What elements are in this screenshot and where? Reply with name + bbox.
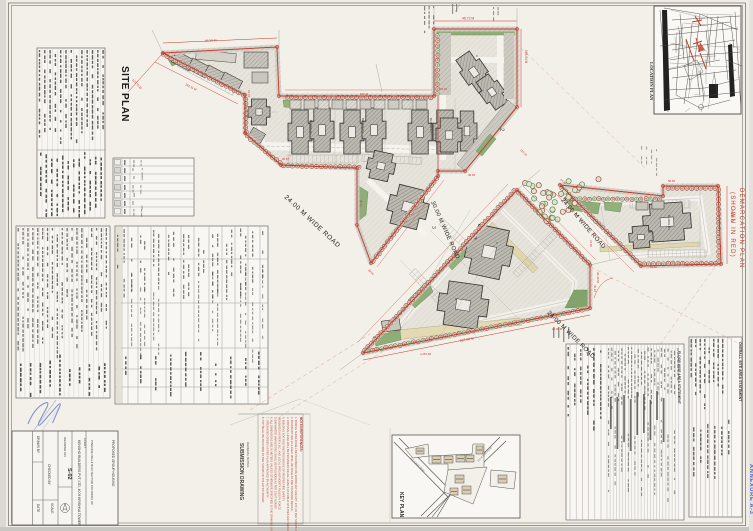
svg-text:64.66: 64.66 (650, 265, 657, 269)
svg-text:6. ALL DIMENSIONS ARE IN METER: 6. ALL DIMENSIONS ARE IN METERS UNLESS O… (269, 417, 273, 531)
svg-text:DRAWING NO: DRAWING NO (63, 437, 67, 457)
svg-text:CHECKED BY: CHECKED BY (47, 464, 51, 486)
svg-text:36.57: 36.57 (282, 157, 289, 161)
svg-text:163.94 M: 163.94 M (524, 50, 528, 64)
svg-text:SCALE: SCALE (50, 503, 54, 513)
svg-text:30.15: 30.15 (593, 285, 597, 292)
svg-text:30.11: 30.11 (359, 200, 363, 207)
svg-text:24.37: 24.37 (247, 90, 251, 97)
svg-text:GENERAL NOTES: GENERAL NOTES (246, 442, 250, 467)
svg-text:5. RAINWATER HARVESTING SHALL: 5. RAINWATER HARVESTING SHALL BE PROVIDE… (274, 417, 278, 509)
svg-text:BLOCK-D1: BLOCK-D1 (361, 118, 365, 133)
svg-text:DATE: DATE (36, 504, 40, 512)
svg-text:24.00: 24.00 (589, 240, 593, 247)
svg-text:94.85 M: 94.85 M (730, 210, 734, 222)
svg-text:3: 3 (430, 226, 436, 229)
svg-text:FLOOR WISE AREA STATEMENT: FLOOR WISE AREA STATEMENT (677, 351, 681, 405)
svg-text:18.29: 18.29 (440, 87, 447, 91)
svg-text:NOTES/REFERENCES:: NOTES/REFERENCES: (299, 417, 303, 452)
svg-text:PROPOSED GROUP HOUSING: PROPOSED GROUP HOUSING (111, 440, 115, 487)
svg-text:46.72 M: 46.72 M (462, 17, 474, 21)
svg-text:7. ORGANISED GREEN AS PER PLAN: 7. ORGANISED GREEN AS PER PLAN APPROVED … (265, 417, 269, 498)
svg-text:DEMARCATION PLAN: DEMARCATION PLAN (738, 188, 744, 268)
svg-text:96.36 M: 96.36 M (205, 38, 217, 43)
svg-text:B: B (459, 120, 463, 122)
svg-text:100.11: 100.11 (360, 92, 369, 96)
svg-text:4. BUILDING FOR ROD THE PROVIS: 4. BUILDING FOR ROD THE PROVISIONS OF PR… (282, 417, 286, 501)
svg-text:1. BORING SHOULD WELL BE PROVI: 1. BORING SHOULD WELL BE PROVIDED FOR RO… (294, 417, 298, 531)
svg-text:SUBMISSION DRAWING: SUBMISSION DRAWING (238, 443, 244, 500)
svg-text:PINCODE DELHI NCR SECTOR 150 N: PINCODE DELHI NCR SECTOR 150 NOIDA UP (90, 440, 94, 505)
svg-text:2. BOUNDARY WALLS & ELEV. MTRL: 2. BOUNDARY WALLS & ELEV. MTRL. BE DONE … (290, 417, 294, 512)
svg-text:OVERALL SITE AREA STATEMENT: OVERALL SITE AREA STATEMENT (738, 342, 742, 402)
svg-text:A: A (475, 55, 479, 57)
svg-text:BLOCK-B3: BLOCK-B3 (667, 215, 671, 230)
svg-text:46.05: 46.05 (468, 173, 475, 177)
svg-text:DRAWN BY: DRAWN BY (36, 436, 40, 454)
svg-text:ANNEXURE A-3: ANNEXURE A-3 (748, 464, 753, 515)
svg-text:8. STP SHALL BE PROVIDED AS PE: 8. STP SHALL BE PROVIDED AS PER NORMS OF… (261, 417, 265, 502)
svg-text:(SHOWN IN RED): (SHOWN IN RED) (729, 192, 735, 258)
svg-text:3. DISPOSAL LEVEL WILL BE PROV: 3. DISPOSAL LEVEL WILL BE PROVIDED FOR A… (286, 417, 290, 531)
svg-text:SITE PLAN: SITE PLAN (119, 66, 130, 122)
svg-text:30.48 M: 30.48 M (596, 272, 600, 283)
svg-text:S-02: S-02 (66, 468, 72, 480)
svg-text:CLIENT: CLIENT (83, 438, 87, 448)
svg-text:BLOCK-C1: BLOCK-C1 (429, 118, 433, 133)
svg-text:LOCATION PLAN: LOCATION PLAN (649, 62, 654, 101)
svg-text:58.56: 58.56 (668, 179, 675, 183)
svg-text:KENSHO BUILDERS PVT LTD, 4009: KENSHO BUILDERS PVT LTD, 4009 KRISHNA TO… (77, 440, 81, 526)
svg-text:BLOCK-E1: BLOCK-E1 (309, 120, 313, 135)
svg-text:KEY PLAN: KEY PLAN (398, 492, 404, 518)
svg-text:q 287.08: q 287.08 (420, 352, 431, 356)
svg-text:MEASURES AS PER N.B.C. AND LOC: MEASURES AS PER N.B.C. AND LOCAL FIRE AU… (278, 417, 282, 510)
svg-text:F: F (495, 242, 499, 244)
